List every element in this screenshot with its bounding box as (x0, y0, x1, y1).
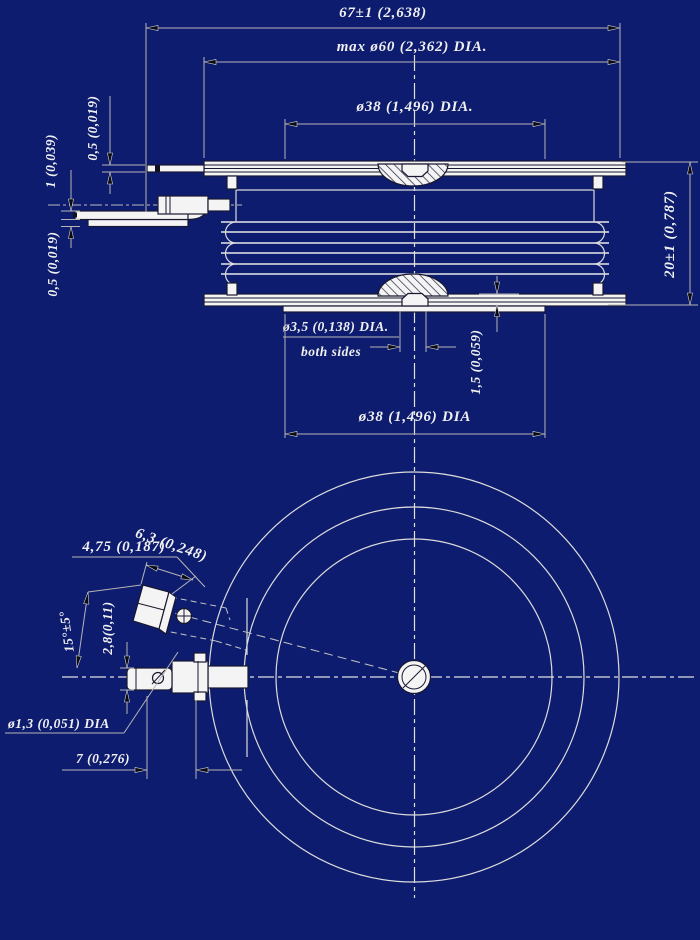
terminal-rod (208, 199, 230, 211)
lid-skirt-right (593, 176, 603, 189)
lead-tail (88, 220, 188, 227)
dim-max-diameter-label: max ø60 (2,362) DIA. (337, 39, 488, 55)
horizontal-terminal (127, 653, 248, 701)
outline-drawing: 67±1 (2,638) max ø60 (2,362) DIA. ø38 (1… (0, 0, 700, 940)
dim-gate-hole-label: ø3,5 (0,138) DIA. (282, 319, 389, 334)
lid-skirt-left (227, 176, 237, 189)
lid-skirt-right-bottom (593, 283, 603, 295)
bottom-center-boss-hatched (378, 274, 448, 296)
angled-gate-tab (133, 585, 193, 634)
dim-lead-thickness-bottom-label: 0,5 (0,019) (45, 231, 60, 296)
dim-height-label: 20±1 (0,787) (662, 190, 678, 279)
hidden-lead-edge-4 (216, 641, 246, 650)
bottom-pole-face (283, 306, 545, 312)
dim-overall-width-label: 67±1 (2,638) (339, 5, 427, 21)
lead-weld-mark (155, 166, 160, 172)
lid-skirt-left-bottom (227, 283, 237, 295)
top-pole-lid (147, 161, 626, 189)
dim-lead-angle-label: 15°±5° (56, 610, 77, 653)
bottom-gate-contact (402, 294, 428, 307)
plan-view-dimensions: 6,3 (0,248) 4,75 (0,187) 15°±5° 2,8(0,11… (5, 525, 242, 779)
center-hub (398, 661, 431, 694)
terminal-ferrule-plan (172, 661, 208, 693)
dim-tab-thickness-label: 2,8(0,11) (100, 601, 115, 655)
hidden-lead-edge-2 (161, 630, 216, 641)
bottom-pole-lid (204, 274, 626, 312)
dim-terminal-offset-label: 7 (0,276) (76, 751, 130, 766)
dim-pole-diameter-top-label: ø38 (1,496) DIA. (356, 99, 474, 115)
dim-lead-thickness-top-label: 0,5 (0,019) (85, 95, 100, 160)
strip-end-mark (73, 213, 77, 218)
dim-recess-depth-label: 1,5 (0,059) (468, 329, 483, 394)
dim-tab-width-label: 4,75 (0,187) (81, 539, 165, 555)
hidden-lead-edge-1 (171, 597, 226, 608)
top-gate-contact (402, 164, 428, 177)
dim-terminal-thickness-label: 1 (0,039) (43, 134, 58, 188)
bottom-plan-view: 6,3 (0,248) 4,75 (0,187) 15°±5° 2,8(0,11… (5, 472, 698, 882)
dim-hole-diameter-label: ø1,3 (0,051) DIA (7, 716, 110, 731)
hidden-lead-edge-3 (226, 608, 230, 620)
drawing-sheet: 67±1 (2,638) max ø60 (2,362) DIA. ø38 (1… (0, 0, 700, 940)
gate-hole-note-label: both sides (301, 344, 361, 359)
terminal-lead-plan (208, 666, 248, 688)
dim-pole-diameter-bottom-label: ø38 (1,496) DIA (358, 409, 471, 425)
